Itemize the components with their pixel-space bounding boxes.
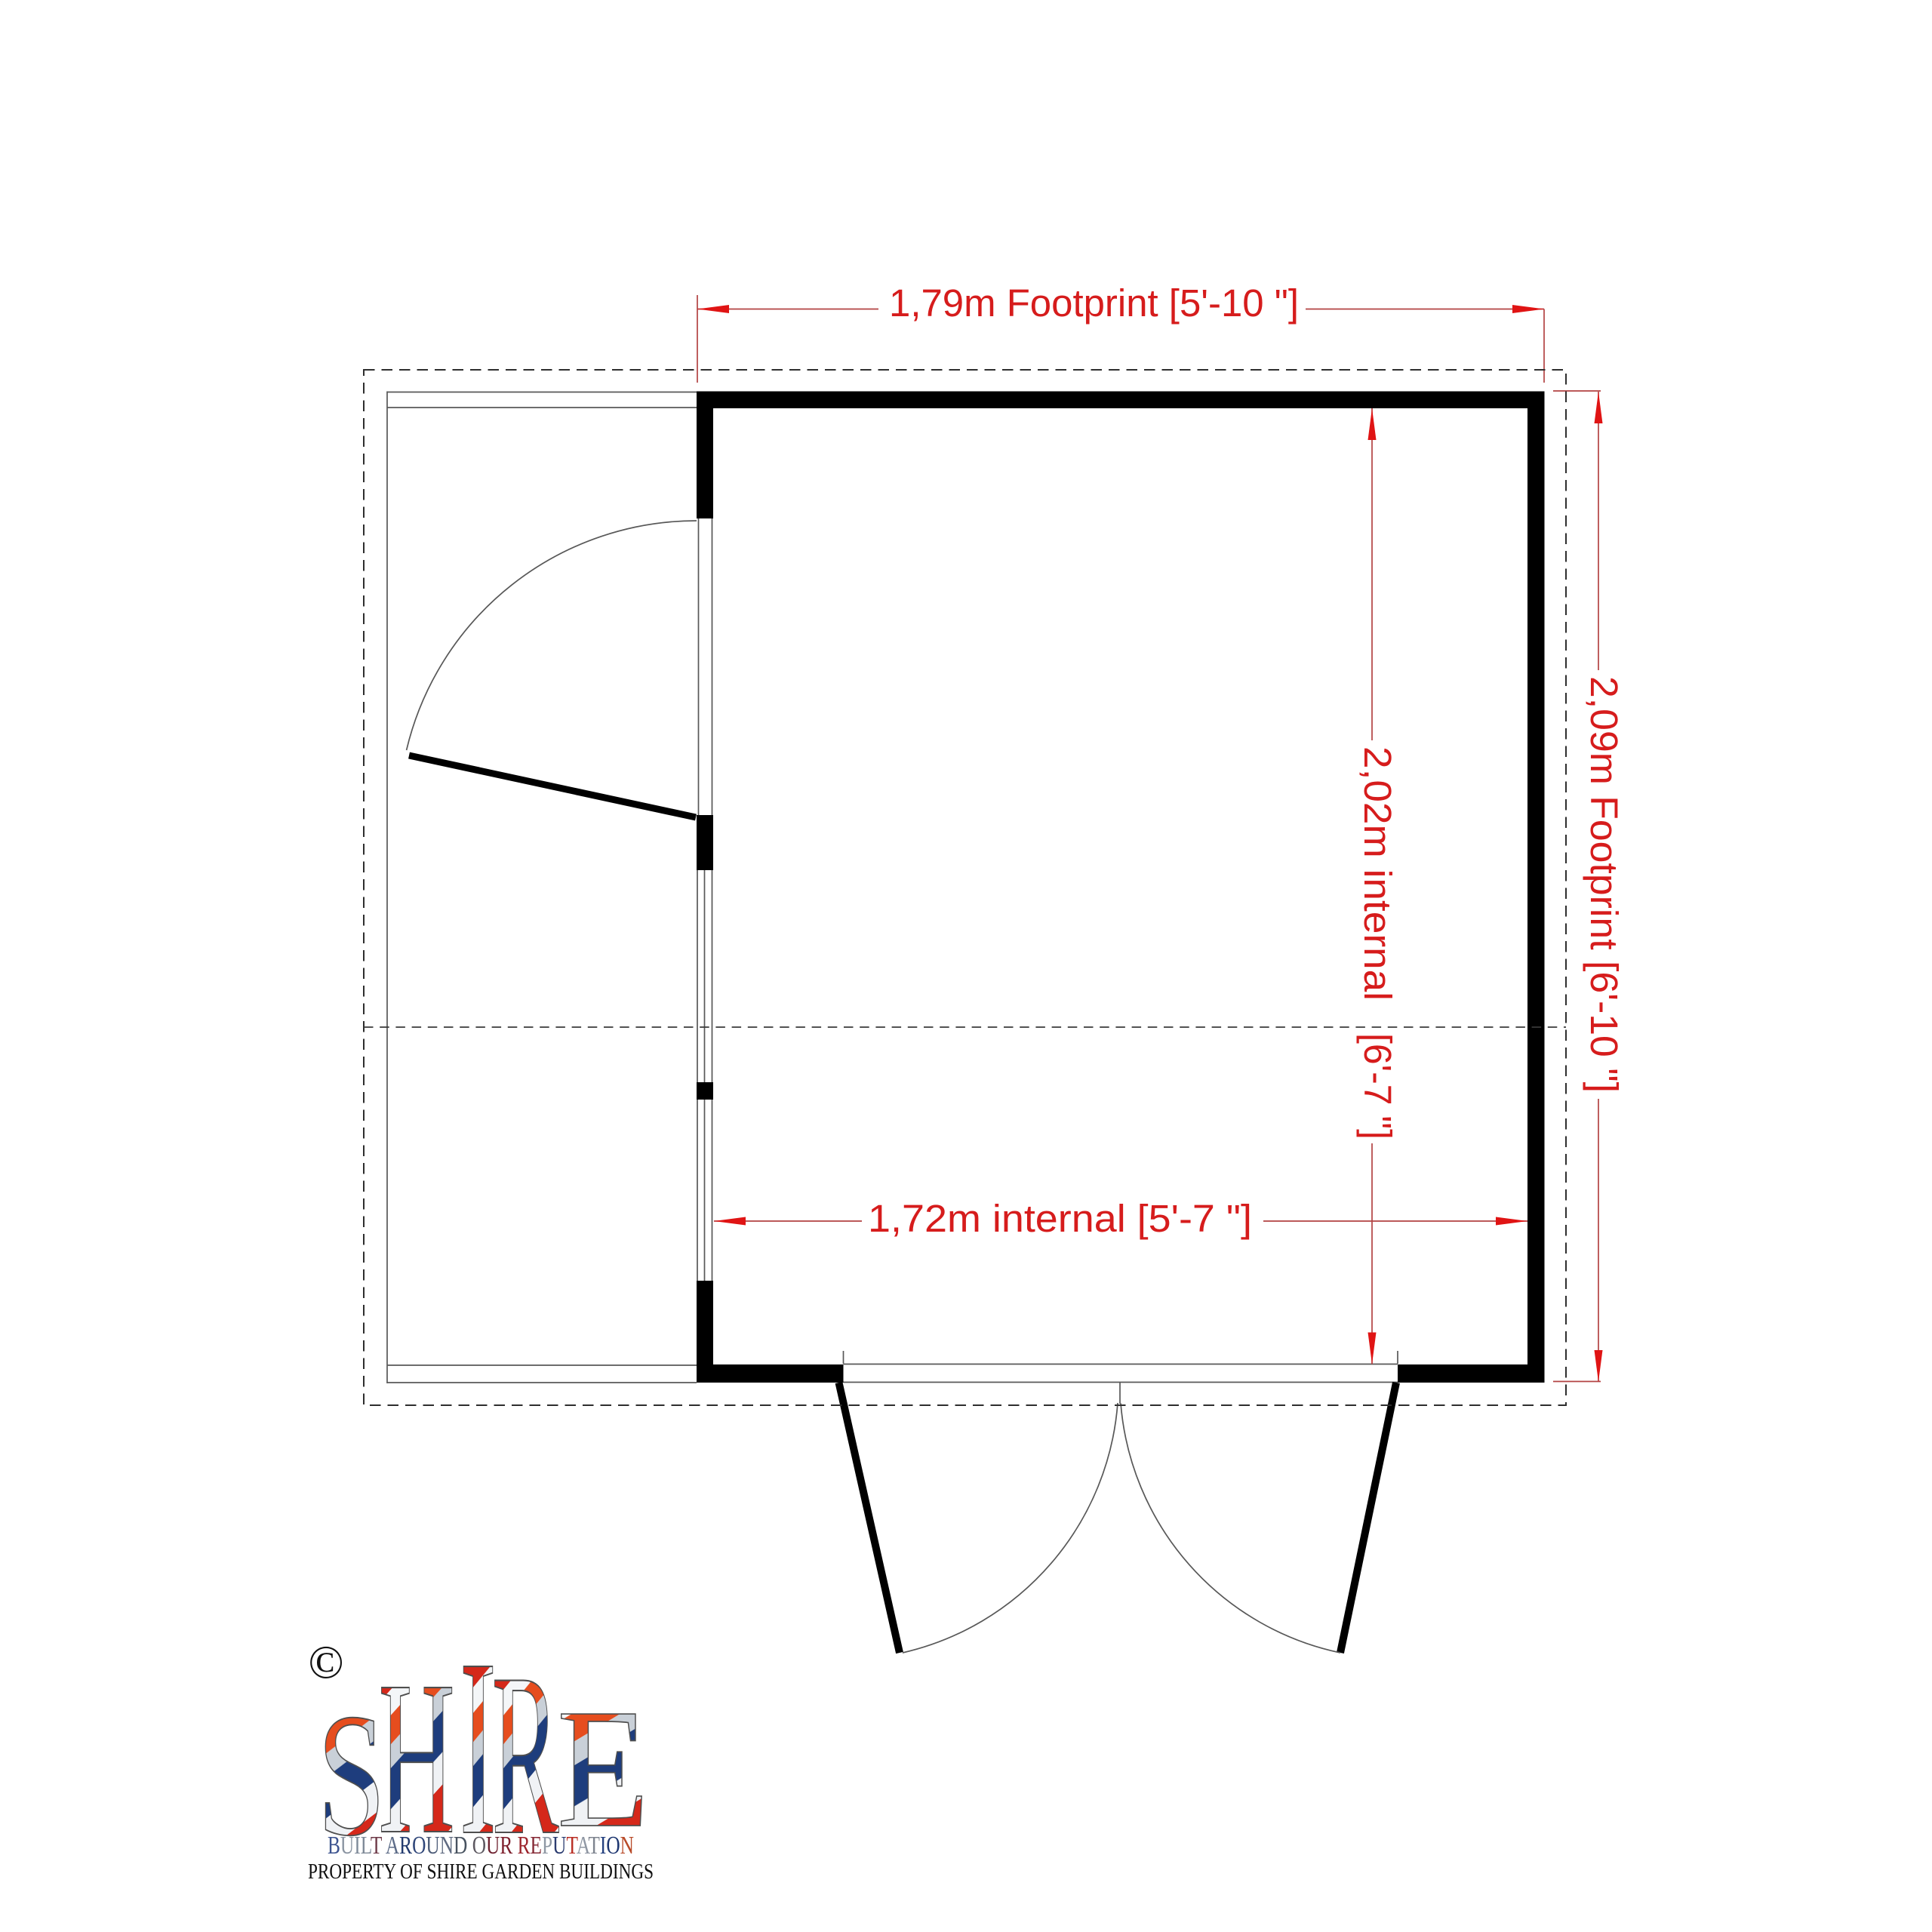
svg-text:2,02m internal: 2,02m internal [1356,746,1399,1001]
svg-text:2,09m Footprint [6'-10 "]: 2,09m Footprint [6'-10 "] [1583,676,1626,1093]
svg-text:[6'-7 "]: [6'-7 "] [1356,1033,1399,1140]
svg-text:1,72m internal [5'-7 "]: 1,72m internal [5'-7 "] [868,1197,1252,1240]
svg-text:PROPERTY OF SHIRE GARDEN BUILD: PROPERTY OF SHIRE GARDEN BUILDINGS [308,1860,654,1884]
svg-text:1,79m Footprint [5'-10 "]: 1,79m Footprint [5'-10 "] [889,281,1299,325]
svg-text:BUILT AROUND OUR REPUTATION: BUILT AROUND OUR REPUTATION [328,1832,634,1860]
